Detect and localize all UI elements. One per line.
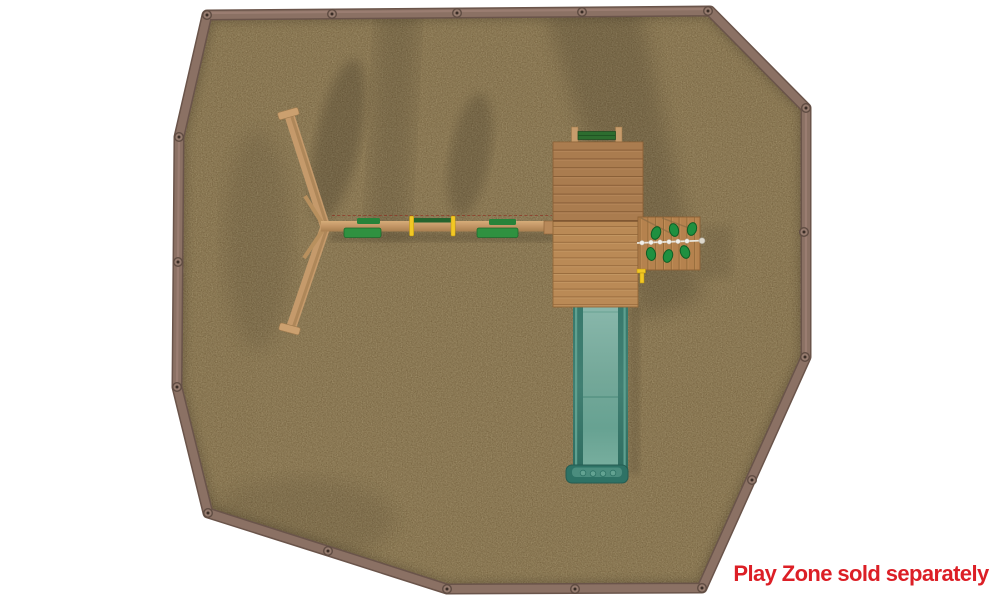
slide-left-rail — [573, 303, 583, 470]
mulch-surface — [160, 0, 820, 606]
beam-bracket — [544, 221, 554, 234]
slide-bed — [583, 303, 618, 470]
playset-product-render: Play Zone sold separately — [0, 0, 1000, 606]
wave-slide — [566, 303, 628, 483]
slide-right-rail — [618, 303, 628, 470]
play-zone-illustration — [0, 0, 1000, 606]
rock-climbing-wall — [637, 217, 705, 270]
slide-foot — [566, 465, 628, 483]
caption-play-zone-sold-separately: Play Zone sold separately — [733, 561, 989, 591]
lower-deck — [553, 221, 638, 307]
upper-deck — [553, 142, 643, 221]
